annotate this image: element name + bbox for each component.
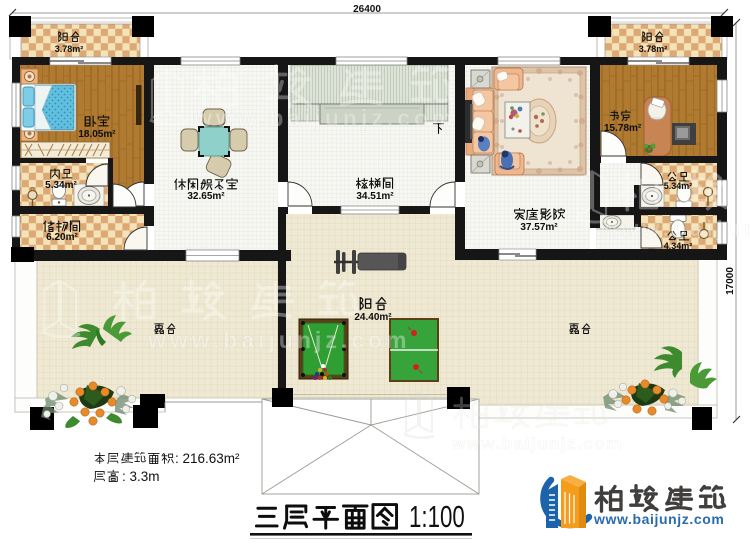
svg-text:37.57m²: 37.57m² xyxy=(520,222,558,233)
svg-text:18.05m²: 18.05m² xyxy=(78,129,116,140)
svg-text:www.baijunjz.com: www.baijunjz.com xyxy=(451,434,623,453)
svg-text:24.40m²: 24.40m² xyxy=(354,312,392,323)
svg-text:: 3.3m: : 3.3m xyxy=(122,469,160,484)
svg-text:www.baijunjz.com: www.baijunjz.com xyxy=(193,105,457,131)
svg-text:32.65m²: 32.65m² xyxy=(187,191,225,202)
svg-text:4.34m²: 4.34m² xyxy=(664,241,693,251)
svg-text:26400: 26400 xyxy=(353,4,381,15)
svg-text:www.baijunjz.com: www.baijunjz.com xyxy=(147,327,411,353)
svg-text:3.78m²: 3.78m² xyxy=(55,44,84,54)
svg-text:5.34m²: 5.34m² xyxy=(45,180,77,191)
svg-text:34.51m²: 34.51m² xyxy=(356,191,394,202)
svg-text:1:100: 1:100 xyxy=(409,499,465,533)
svg-text:5.34m²: 5.34m² xyxy=(664,181,693,191)
svg-text:3.78m²: 3.78m² xyxy=(639,44,668,54)
svg-text:17000: 17000 xyxy=(725,267,736,295)
svg-text:www.baijunjz.com: www.baijunjz.com xyxy=(593,511,724,527)
svg-text:: 216.63m²: : 216.63m² xyxy=(175,451,240,466)
svg-text:6.20m²: 6.20m² xyxy=(46,232,78,243)
svg-text:www.baijunjz.com: www.baijunjz.com xyxy=(599,216,750,241)
svg-text:15.78m²: 15.78m² xyxy=(604,123,642,134)
